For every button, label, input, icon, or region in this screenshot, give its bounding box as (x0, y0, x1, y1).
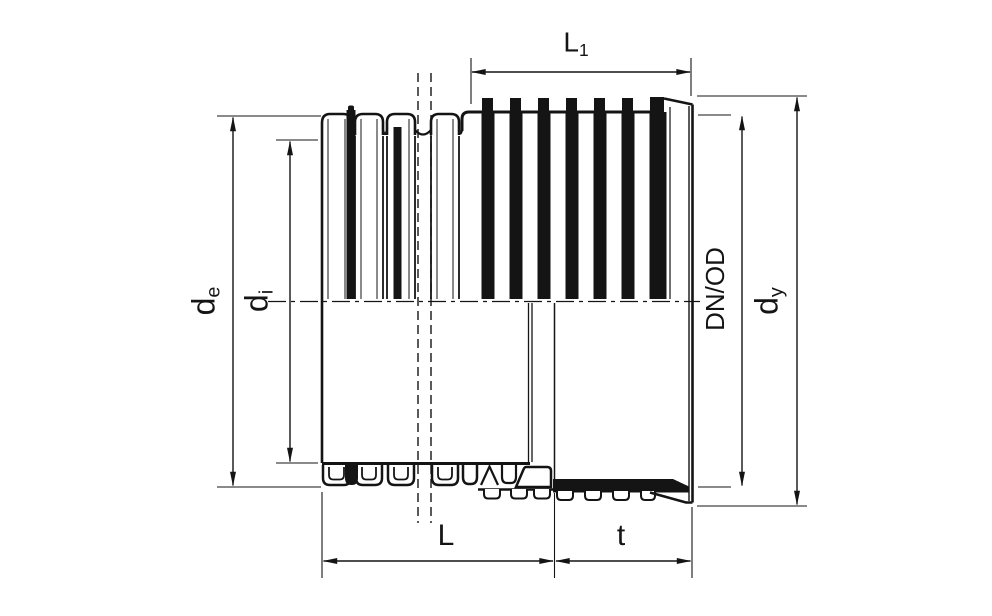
dimension-label-dy: dy (751, 287, 788, 315)
dimension-label-l: L (438, 521, 455, 551)
break-lines (418, 73, 431, 523)
dimension-label-t: t (617, 521, 625, 551)
socket-top (462, 97, 693, 503)
dimension-label-di: di (241, 290, 278, 312)
pipe-socket-technical-drawing: L1 de di DN/OD dy L t (0, 0, 992, 616)
dimension-label-de: de (188, 287, 225, 316)
dimension-label-dnod: DN/OD (702, 247, 728, 331)
socket-section-bottom (478, 303, 693, 503)
dimension-label-l1: L1 (563, 29, 588, 60)
corrugated-pipe-top (322, 106, 462, 464)
drawing-canvas (0, 0, 992, 616)
corrugated-pipe-section-bottom (322, 303, 551, 487)
